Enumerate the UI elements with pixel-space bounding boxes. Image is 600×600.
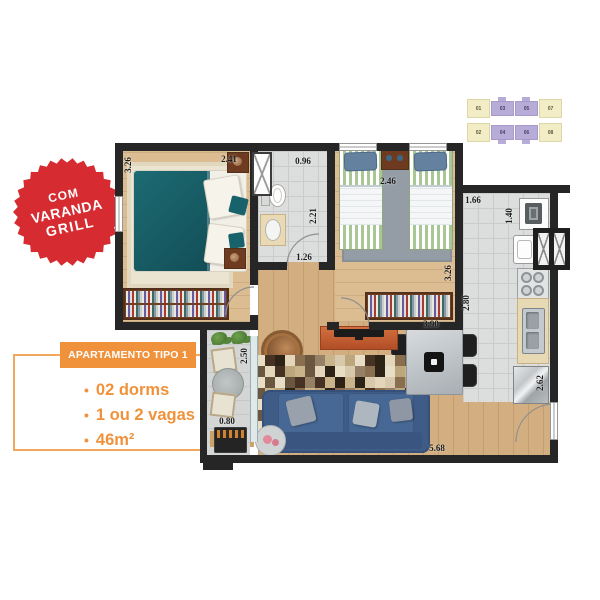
bracket-line-vertical — [13, 354, 15, 451]
dimension-label: 1.40 — [504, 208, 514, 224]
dimension-label: 2.41 — [221, 154, 237, 164]
floorplan-page: 0103050702040608 COM VARANDA GRILL APART… — [0, 0, 600, 600]
wall-bottom — [200, 455, 558, 463]
dimension-label: 5.68 — [429, 443, 445, 453]
window — [339, 143, 377, 151]
keyplan-unit-05: 05 — [515, 101, 538, 116]
building-keyplan: 0103050702040608 — [467, 97, 567, 145]
window — [409, 143, 447, 151]
wall-left — [115, 232, 123, 330]
dimension-label: 0.80 — [219, 416, 235, 426]
balcony-glass-door — [250, 336, 258, 442]
dimension-label: 3.90 — [423, 319, 439, 329]
ventilation-shaft — [533, 228, 570, 270]
keyplan-unit-07: 07 — [539, 99, 562, 118]
bracket-line-left — [13, 354, 60, 356]
dimension-label: 1.26 — [296, 252, 312, 262]
wall-right — [550, 185, 558, 402]
keyplan-unit-04: 04 — [491, 125, 514, 140]
wall-bedroom1-divider — [250, 315, 258, 330]
wall-bedroom2-bottom — [369, 322, 460, 330]
keyplan-unit-01: 01 — [467, 99, 490, 118]
wall-balcony-ledge — [203, 461, 233, 470]
dimension-label: 0.96 — [295, 156, 311, 166]
dimension-label: 3.26 — [443, 265, 453, 281]
shower-stall — [252, 152, 272, 196]
wall-bathroom-bottom — [319, 262, 335, 270]
wall-bedroom1-bottom — [115, 322, 258, 330]
keyplan-unit-03: 03 — [491, 101, 514, 116]
wall-balcony-left — [200, 326, 207, 455]
wall-bathroom-bottom — [250, 262, 287, 270]
dimension-label: 1.66 — [465, 195, 481, 205]
dimension-label: 2.21 — [308, 208, 318, 224]
dimension-label: 2.62 — [535, 375, 545, 391]
dimension-label: 3.26 — [123, 157, 133, 173]
wall-bathroom-divider — [327, 143, 335, 270]
keyplan-unit-06: 06 — [515, 125, 538, 140]
dimension-label: 2.80 — [461, 295, 471, 311]
entry-door-opening — [550, 402, 558, 440]
dimension-label: 2.46 — [380, 176, 396, 186]
dimension-label: 2.50 — [239, 348, 249, 364]
wall-left — [115, 143, 123, 196]
wall-bedroom2-bottom — [327, 322, 339, 330]
window — [115, 196, 123, 232]
floor-plan: 3.262.410.962.211.262.463.261.661.402.80… — [115, 140, 570, 472]
varanda-grill-badge: COM VARANDA GRILL — [2, 147, 132, 277]
